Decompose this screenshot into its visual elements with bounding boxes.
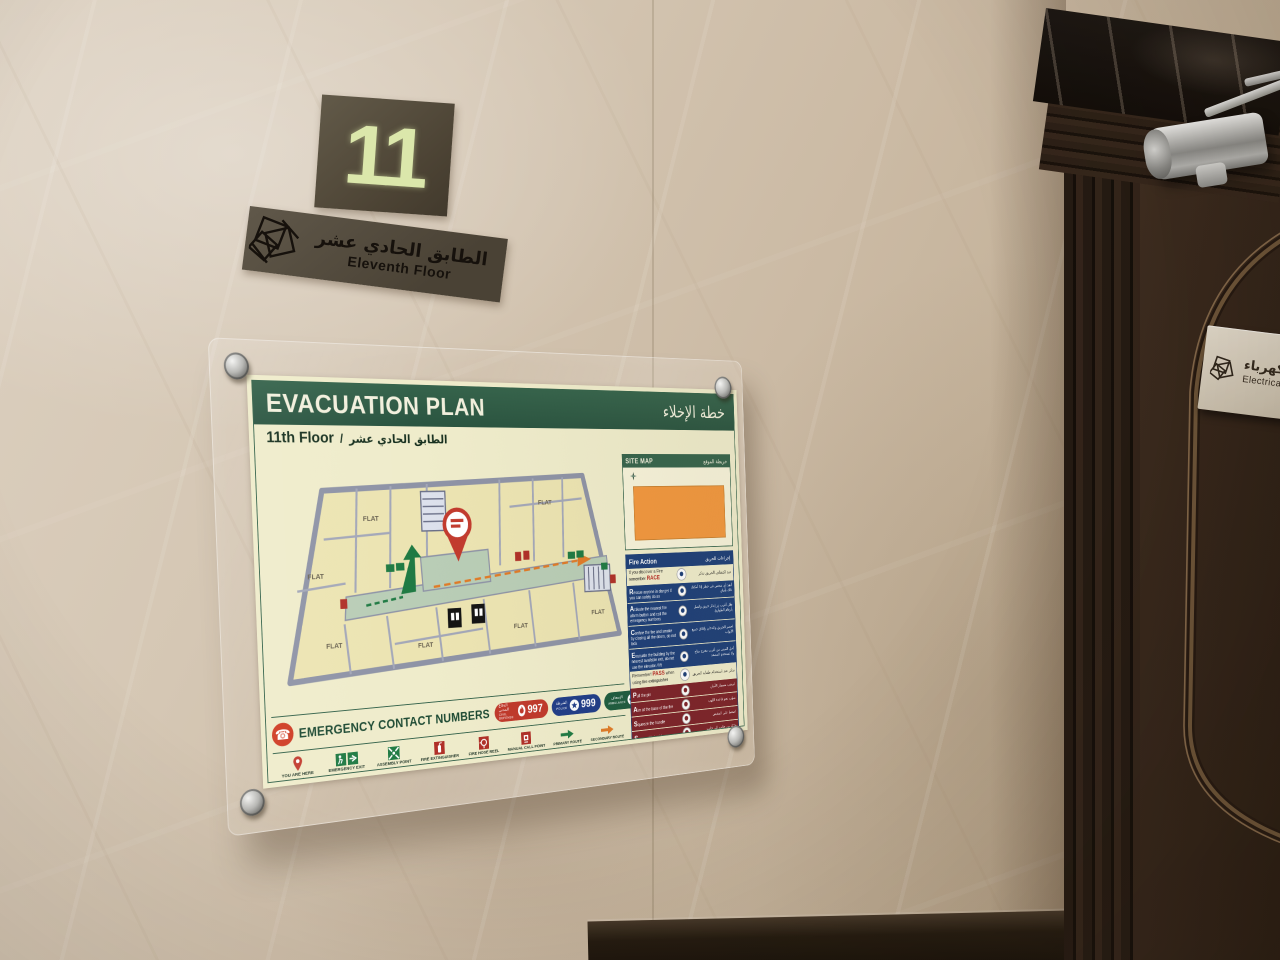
secondary-route-icon <box>600 721 614 735</box>
door-icon <box>679 628 688 639</box>
floor-plan-drawing: FLAT FLAT FLAT FLAT FLAT FLAT FLAT <box>255 451 628 718</box>
svg-text:FLAT: FLAT <box>363 514 380 523</box>
wooden-door <box>1138 138 1280 960</box>
fire-action-title: Fire Action <box>629 557 657 566</box>
sweep-icon <box>682 727 691 739</box>
svg-text:FLAT: FLAT <box>326 641 343 651</box>
legend-fire-hose-reel: FIRE HOSE REEL بكرة خرطوم الحريق <box>463 734 505 765</box>
legend-manual-call-point: MANUAL CALL POINT نقطة الإنذار اليدوي <box>506 729 547 759</box>
civil-defense-997-pill: الدفاع المدنيCIVIL DEFENSE 997 <box>494 698 548 722</box>
lift-icon <box>448 608 462 628</box>
pin-icon <box>681 684 690 696</box>
floor-number: 11 <box>341 111 427 200</box>
primary-route-icon <box>560 726 575 741</box>
fire-hose-reel-icon <box>478 735 488 750</box>
floor-plan: FLAT FLAT FLAT FLAT FLAT FLAT FLAT <box>255 451 628 718</box>
door-panel-molding <box>1138 168 1280 928</box>
poster-title-ar: خطة الإخلاء <box>662 401 725 422</box>
standoff-screw <box>714 376 732 399</box>
civil-defense-label-en: CIVIL DEFENSE <box>499 712 516 721</box>
hallway-photo: غرفة الكهرباء Electrical Room 11 الطابق … <box>0 0 1280 960</box>
stairs-icon <box>420 491 446 531</box>
evacuation-poster: EVACUATION PLAN خطة الإخلاء 11th Floor /… <box>246 375 747 789</box>
flame-icon <box>518 704 526 716</box>
lift-icon <box>471 604 485 624</box>
legend-assembly-point: ASSEMBLY POINT نقطة التجمع <box>371 743 416 775</box>
svg-text:FLAT: FLAT <box>591 607 605 616</box>
electrical-room-label-en: Electrical Room <box>1242 374 1280 396</box>
site-map-building-footprint <box>633 485 726 540</box>
evacuation-board: EVACUATION PLAN خطة الإخلاء 11th Floor /… <box>208 337 755 837</box>
geometric-pattern-icon <box>1209 353 1238 386</box>
svg-text:FLAT: FLAT <box>418 640 434 650</box>
pass-keyword: PASS <box>652 671 664 678</box>
svg-text:FLAT: FLAT <box>538 498 552 506</box>
floor-number-plaque: 11 <box>314 94 455 216</box>
alert-icon <box>676 568 686 581</box>
svg-text:FLAT: FLAT <box>514 621 529 630</box>
rescue-icon <box>677 586 686 597</box>
emergency-exit-icon <box>335 750 358 767</box>
phone-icon: ☎ <box>272 722 294 748</box>
evacuate-icon <box>680 651 689 662</box>
door-closer-valve <box>1195 162 1228 188</box>
race-keyword: RACE <box>647 575 660 582</box>
site-map-title-ar: خريطة الموقع <box>703 458 727 465</box>
police-999-pill: الشرطةPOLICE 999 <box>551 693 601 716</box>
aim-icon <box>681 699 690 711</box>
slash-separator: / <box>340 431 344 445</box>
police-number: 999 <box>581 697 596 711</box>
police-label-en: POLICE <box>556 706 567 711</box>
fire-action-panel: Fire Action إجراءات الحريق If you discov… <box>625 550 739 746</box>
assembly-point-icon <box>388 745 400 760</box>
alarm-icon <box>678 606 687 617</box>
ambulance-label-en: AMBULANCE <box>608 700 626 705</box>
police-badge-icon <box>569 699 579 711</box>
geometric-pattern-icon <box>247 212 305 270</box>
fire-action-title-ar: إجراءات الحريق <box>705 555 730 562</box>
compass-icon <box>630 472 637 481</box>
site-map-title: SITE MAP <box>625 457 653 465</box>
legend-emergency-exit: EMERGENCY EXIT مخرج طوارئ <box>323 749 370 781</box>
you-are-here-icon <box>292 756 302 772</box>
manual-call-point-icon <box>521 731 531 745</box>
svg-text:FLAT: FLAT <box>307 572 324 582</box>
poster-floor-en: 11th Floor <box>266 429 334 447</box>
legend-you-are-here: YOU ARE HERE أنت هنا <box>273 754 322 783</box>
site-map-panel: SITE MAP خريطة الموقع <box>622 454 733 550</box>
legend-fire-extinguisher: FIRE EXTINGUISHER طفاية حريق <box>418 738 462 769</box>
poster-header: EVACUATION PLAN خطة الإخلاء <box>252 381 734 431</box>
civil-defense-number: 997 <box>527 702 543 716</box>
legend-primary-route: PRIMARY ROUTE مسار الخروج الرئيسي <box>548 725 588 754</box>
handle-icon <box>682 713 691 725</box>
poster-floor-ar: الطابق الحادي عشر <box>349 431 448 446</box>
legend-secondary-route: SECONDARY ROUTE مسار الخروج الثانوي <box>588 720 626 749</box>
fire-extinguisher-icon <box>434 740 445 755</box>
extinguisher-icon <box>680 668 690 681</box>
door-jamb-casing <box>1064 142 1140 960</box>
poster-title: EVACUATION PLAN <box>265 388 485 422</box>
